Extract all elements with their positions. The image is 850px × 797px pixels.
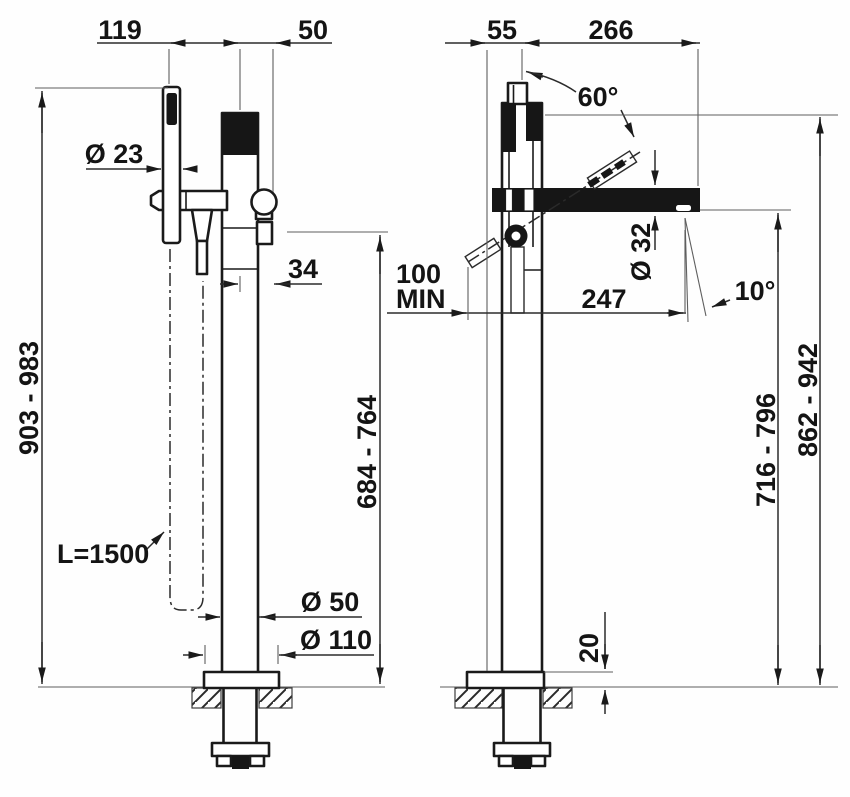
technical-drawing-page: 119 50 Ø 23 903 - 983 34 [0, 0, 850, 797]
dim-spout-diameter: Ø 32 [626, 150, 656, 281]
dim-base-diameter: Ø 110 [183, 625, 374, 664]
dim-label-reach-top: 266 [588, 15, 633, 45]
joystick-knob [252, 190, 277, 215]
base-flange-side [467, 672, 544, 688]
dim-label-outlet-offset: 34 [288, 254, 318, 284]
dim-base-thickness: 20 [574, 612, 605, 714]
dim-overall-height: 862 - 942 [793, 117, 823, 685]
dim-label-spout-height: 684 - 764 [352, 395, 382, 509]
dim-label-spout-offset: 50 [298, 15, 328, 45]
left-view: 119 50 Ø 23 903 - 983 34 [14, 15, 388, 769]
base-flange [204, 672, 279, 688]
spout [492, 188, 700, 212]
faucet-dimension-drawing: 119 50 Ø 23 903 - 983 34 [0, 0, 850, 797]
dim-lever-angle: 60° [526, 72, 838, 138]
dim-spout-tilt: 10° [685, 218, 775, 322]
aerator-outlet [676, 205, 691, 211]
dim-label-total-height: 903 - 983 [14, 341, 44, 455]
dim-label-spout-diameter: Ø 32 [626, 223, 656, 282]
column-cap [222, 113, 258, 155]
under-floor-connection-right [494, 688, 550, 769]
dim-label-spout-tilt: 10° [735, 276, 776, 306]
dim-label-lever-angle: 60° [578, 82, 619, 112]
floor-hatch [259, 688, 292, 708]
dim-hose-length: L=1500 [57, 532, 164, 569]
dim-label-spout-reach: 247 [581, 284, 626, 314]
handshower-grip [167, 93, 178, 125]
dim-label-clearance-min: MIN [396, 284, 446, 314]
dim-label-handshower-offset: 119 [98, 15, 142, 45]
dim-label-hose-length: L=1500 [57, 539, 149, 569]
dim-label-base-diameter: Ø 110 [300, 625, 372, 655]
shower-hose-centerline [170, 249, 203, 610]
dim-label-handshower-diameter: Ø 23 [85, 139, 144, 169]
outlet-block [257, 222, 272, 244]
spout-bar [492, 188, 700, 212]
dim-label-underside-height: 716 - 796 [751, 393, 781, 507]
dim-label-base-thickness: 20 [574, 633, 604, 663]
floor-hatch [543, 688, 572, 708]
column-neck [508, 83, 527, 104]
floor-left [38, 672, 385, 708]
floor-hatch [192, 688, 221, 708]
hose-cone [192, 210, 212, 241]
dim-label-column-diameter: Ø 50 [301, 587, 360, 617]
hose-nipple [197, 241, 207, 274]
dim-right-top-offsets: 55 266 [445, 15, 700, 671]
handshower-assembly [151, 87, 227, 610]
dim-label-lever-offset: 55 [487, 15, 517, 45]
dim-total-height: 903 - 983 [14, 88, 168, 684]
right-view: 55 266 60° Ø 32 10° 100 [387, 15, 838, 769]
mixer-column-side [502, 83, 542, 672]
floor-hatch [455, 688, 502, 708]
dim-label-overall-height: 862 - 942 [793, 343, 823, 457]
